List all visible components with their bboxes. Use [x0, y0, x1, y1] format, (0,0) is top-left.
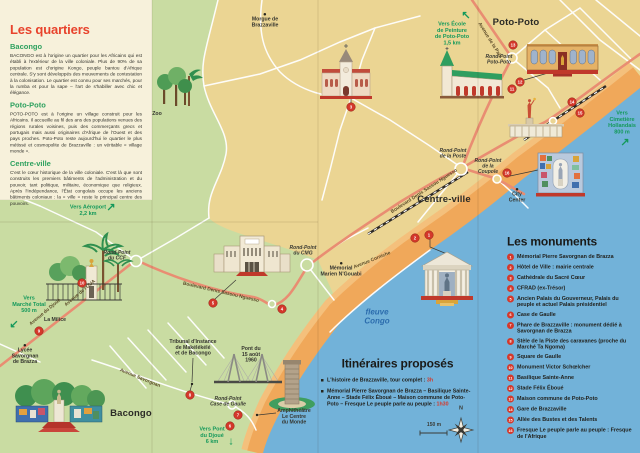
monument-item: 14 Gare de Brazzaville: [507, 406, 637, 413]
monument-number-badge: 9: [507, 354, 514, 361]
itinerary-route: Mémorial Pierre Savorgnan de Brazza – Ba…: [327, 388, 470, 407]
monument-number-badge: 1: [507, 254, 514, 261]
monument-number-badge: 10: [507, 364, 514, 371]
itineraries-panel: Itinéraires proposés L'histoire de Brazz…: [321, 357, 474, 408]
monument-label: Allée des Bustes et des Talents: [517, 417, 597, 423]
bullet-icon: [321, 379, 324, 382]
monument-label: Hôtel de Ville : mairie centrale: [517, 264, 594, 270]
itineraries-title: Itinéraires proposés: [321, 357, 474, 371]
itineraries-list: L'histoire de Brazzaville, tour complet …: [321, 377, 474, 408]
monument-number-badge: 15: [507, 417, 514, 424]
monument-item: 11 Basilique Sainte-Anne: [507, 375, 637, 382]
monuments-panel: Les monuments 1 Mémorial Pierre Savorgna…: [507, 235, 637, 440]
monument-label: Ancien Palais du Gouverneur, Palais du p…: [517, 296, 637, 308]
quartier-description: POTO-POTO est à l'origine un village con…: [10, 111, 142, 154]
monument-number-badge: 3: [507, 275, 514, 282]
monument-item: 2 Hôtel de Ville : mairie centrale: [507, 264, 637, 271]
quartier-name: Centre-ville: [10, 159, 142, 168]
monument-label: Stade Félix Éboué: [517, 385, 564, 391]
monument-item: 1 Mémorial Pierre Savorgnan de Brazza: [507, 254, 637, 261]
monument-label: Cathédrale du Sacré Cœur: [517, 275, 585, 281]
monument-item: 15 Allée des Bustes et des Talents: [507, 417, 637, 424]
quartier-description: C'est le cœur historique de la ville col…: [10, 169, 142, 206]
map-page: Poto-PotoCentre-villeBacongoMorgue de Br…: [0, 0, 640, 453]
monument-number-badge: 6: [507, 311, 514, 318]
monument-item: 7 Phare de Brazzaville : monument dédié …: [507, 322, 637, 334]
fresco-illustration: [536, 153, 585, 197]
monument-number-badge: 11: [507, 375, 514, 382]
quartiers-panel: Les quartiers Bacongo BACONGO est à l'or…: [0, 0, 152, 200]
monument-number-badge: 5: [507, 296, 514, 303]
monuments-list: 1 Mémorial Pierre Savorgnan de Brazza 2 …: [507, 254, 637, 440]
stadium-illustration: [527, 44, 598, 77]
monument-item: 3 Cathédrale du Sacré Cœur: [507, 275, 637, 282]
monument-label: CFRAD (ex-Trésor): [517, 285, 565, 291]
quartier-description: BACONGO est à l'origine un quartier pour…: [10, 53, 142, 96]
monument-number-badge: 2: [507, 264, 514, 271]
monument-item: 12 Stade Félix Éboué: [507, 385, 637, 392]
monument-label: Basilique Sainte-Anne: [517, 375, 574, 381]
itinerary-text: Mémorial Pierre Savorgnan de Brazza – Ba…: [327, 388, 474, 408]
monument-label: Mémorial Pierre Savorgnan de Brazza: [517, 254, 614, 260]
monument-label: Gare de Brazzaville: [517, 406, 567, 412]
itinerary-route: L'histoire de Brazzaville, tour complet …: [327, 377, 427, 383]
monument-item: 8 Stèle de la Piste des caravanes (proch…: [507, 338, 637, 350]
monument-number-badge: 14: [507, 406, 514, 413]
monument-label: Phare de Brazzaville : monument dédié à …: [517, 322, 637, 334]
quartiers-sections: Bacongo BACONGO est à l'origine un quart…: [10, 43, 142, 207]
itinerary-text: L'histoire de Brazzaville, tour complet …: [327, 377, 433, 384]
quartier-section: Centre-ville C'est le cœur historique de…: [10, 159, 142, 206]
monuments-title: Les monuments: [507, 235, 637, 249]
monument-label: Maison commune de Poto-Poto: [517, 396, 598, 402]
quartier-section: Poto-Poto POTO-POTO est à l'origine un v…: [10, 101, 142, 154]
monument-item: 5 Ancien Palais du Gouverneur, Palais du…: [507, 296, 637, 308]
quartier-section: Bacongo BACONGO est à l'origine un quart…: [10, 43, 142, 96]
itinerary-duration: 1h30: [436, 401, 448, 407]
monument-item: 16 Fresque Le peuple parle au peuple : F…: [507, 427, 637, 439]
map-stage: Poto-PotoCentre-villeBacongoMorgue de Br…: [0, 0, 640, 453]
monument-item: 6 Case de Gaulle: [507, 311, 637, 318]
monument-label: Stèle de la Piste des caravanes (proche …: [517, 338, 637, 350]
monument-item: 13 Maison commune de Poto-Poto: [507, 396, 637, 403]
monument-item: 4 CFRAD (ex-Trésor): [507, 285, 637, 292]
monument-number-badge: 7: [507, 322, 514, 329]
monument-label: Monument Victor Schœlcher: [517, 364, 590, 370]
quartiers-title: Les quartiers: [10, 22, 142, 38]
monument-label: Case de Gaulle: [517, 311, 556, 317]
itinerary-item: Mémorial Pierre Savorgnan de Brazza – Ba…: [321, 388, 474, 408]
itinerary-duration: 3h: [427, 377, 433, 383]
quartier-name: Bacongo: [10, 43, 142, 52]
bullet-icon: [321, 390, 324, 393]
monument-item: 10 Monument Victor Schœlcher: [507, 364, 637, 371]
monument-number-badge: 8: [507, 338, 514, 345]
monument-number-badge: 16: [507, 427, 514, 434]
quartier-name: Poto-Poto: [10, 101, 142, 110]
monument-number-badge: 12: [507, 385, 514, 392]
itinerary-item: L'histoire de Brazzaville, tour complet …: [321, 377, 474, 384]
monument-number-badge: 4: [507, 285, 514, 292]
monument-item: 9 Square de Gaulle: [507, 354, 637, 361]
monument-label: Fresque Le peuple parle au peuple : Fres…: [517, 427, 637, 439]
monument-number-badge: 13: [507, 396, 514, 403]
monument-label: Square de Gaulle: [517, 354, 561, 360]
